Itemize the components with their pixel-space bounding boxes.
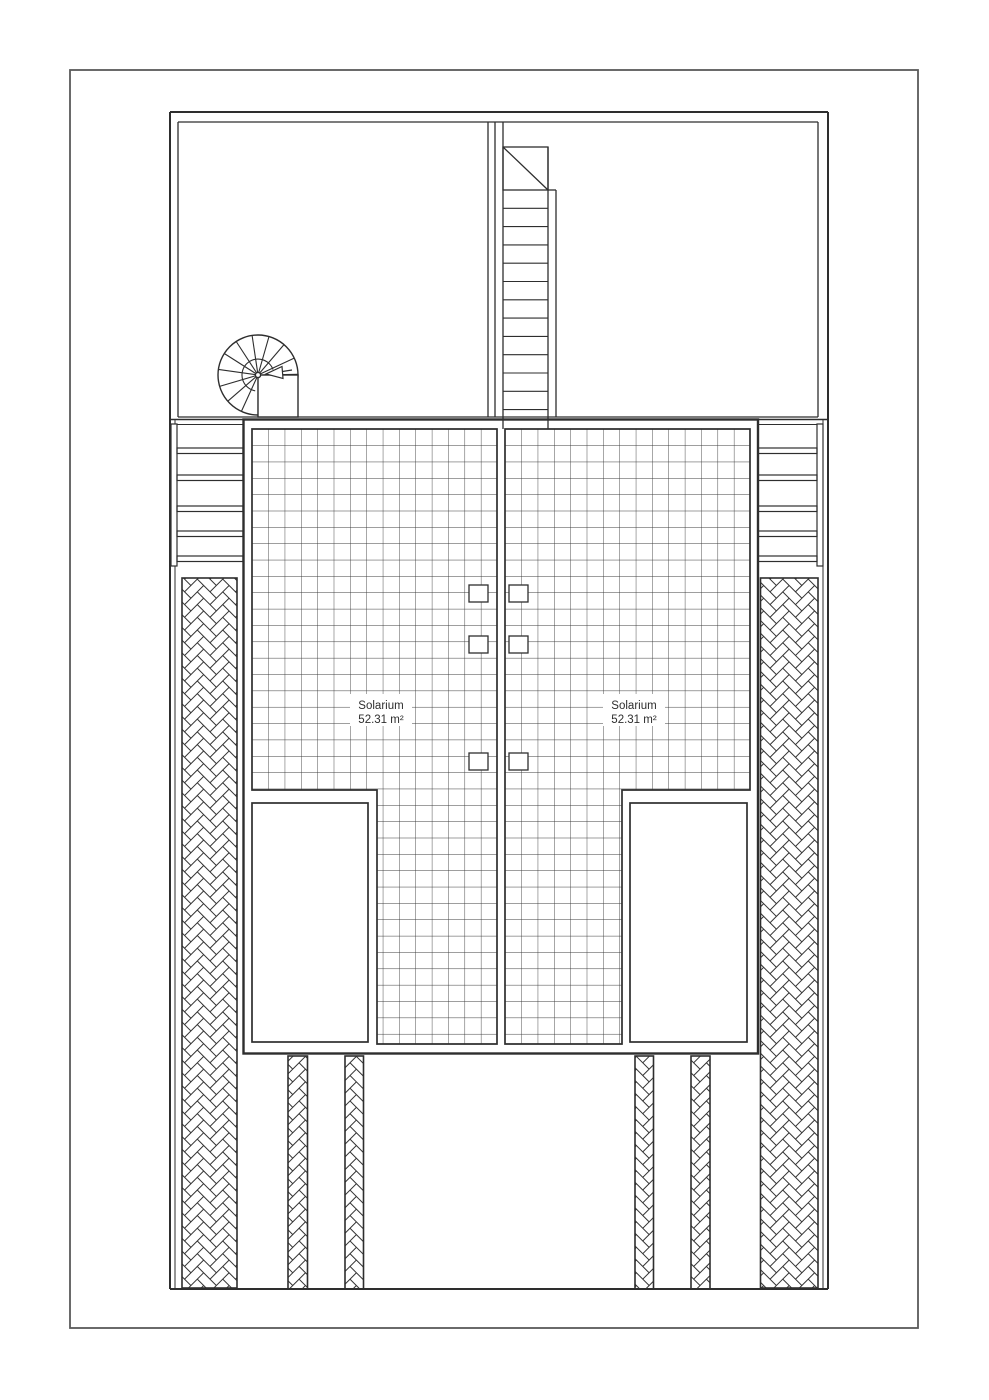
spiral-staircase (218, 335, 298, 417)
left-walkway-hatch (182, 578, 237, 1288)
right-pool-opening (630, 803, 747, 1042)
bottom-strip-4 (691, 1056, 710, 1289)
floor-plan-drawing: Solarium 52.31 m² Solarium 52.31 m² (0, 0, 989, 1400)
bottom-strip-3 (635, 1056, 654, 1289)
spiral-landing (258, 375, 298, 417)
right-walkway-hatch (761, 578, 819, 1288)
left-railing (171, 424, 243, 566)
left-solarium-name: Solarium (358, 700, 403, 712)
stair-treads (503, 208, 548, 409)
right-solarium-area: 52.31 m² (611, 714, 657, 726)
stair-break-diagonal (503, 147, 548, 190)
bottom-strip-2 (345, 1056, 364, 1289)
plan: Solarium 52.31 m² Solarium 52.31 m² (170, 112, 828, 1289)
bottom-strip-1 (288, 1056, 308, 1289)
floor-plan-page: Solarium 52.31 m² Solarium 52.31 m² (0, 0, 989, 1400)
right-solarium-label: Solarium 52.31 m² (603, 694, 665, 726)
straight-staircase (503, 122, 556, 429)
left-solarium-area: 52.31 m² (358, 714, 404, 726)
left-pool-opening (252, 803, 368, 1042)
left-solarium-label: Solarium 52.31 m² (350, 694, 412, 726)
right-solarium-name: Solarium (611, 700, 656, 712)
right-railing (758, 424, 823, 566)
